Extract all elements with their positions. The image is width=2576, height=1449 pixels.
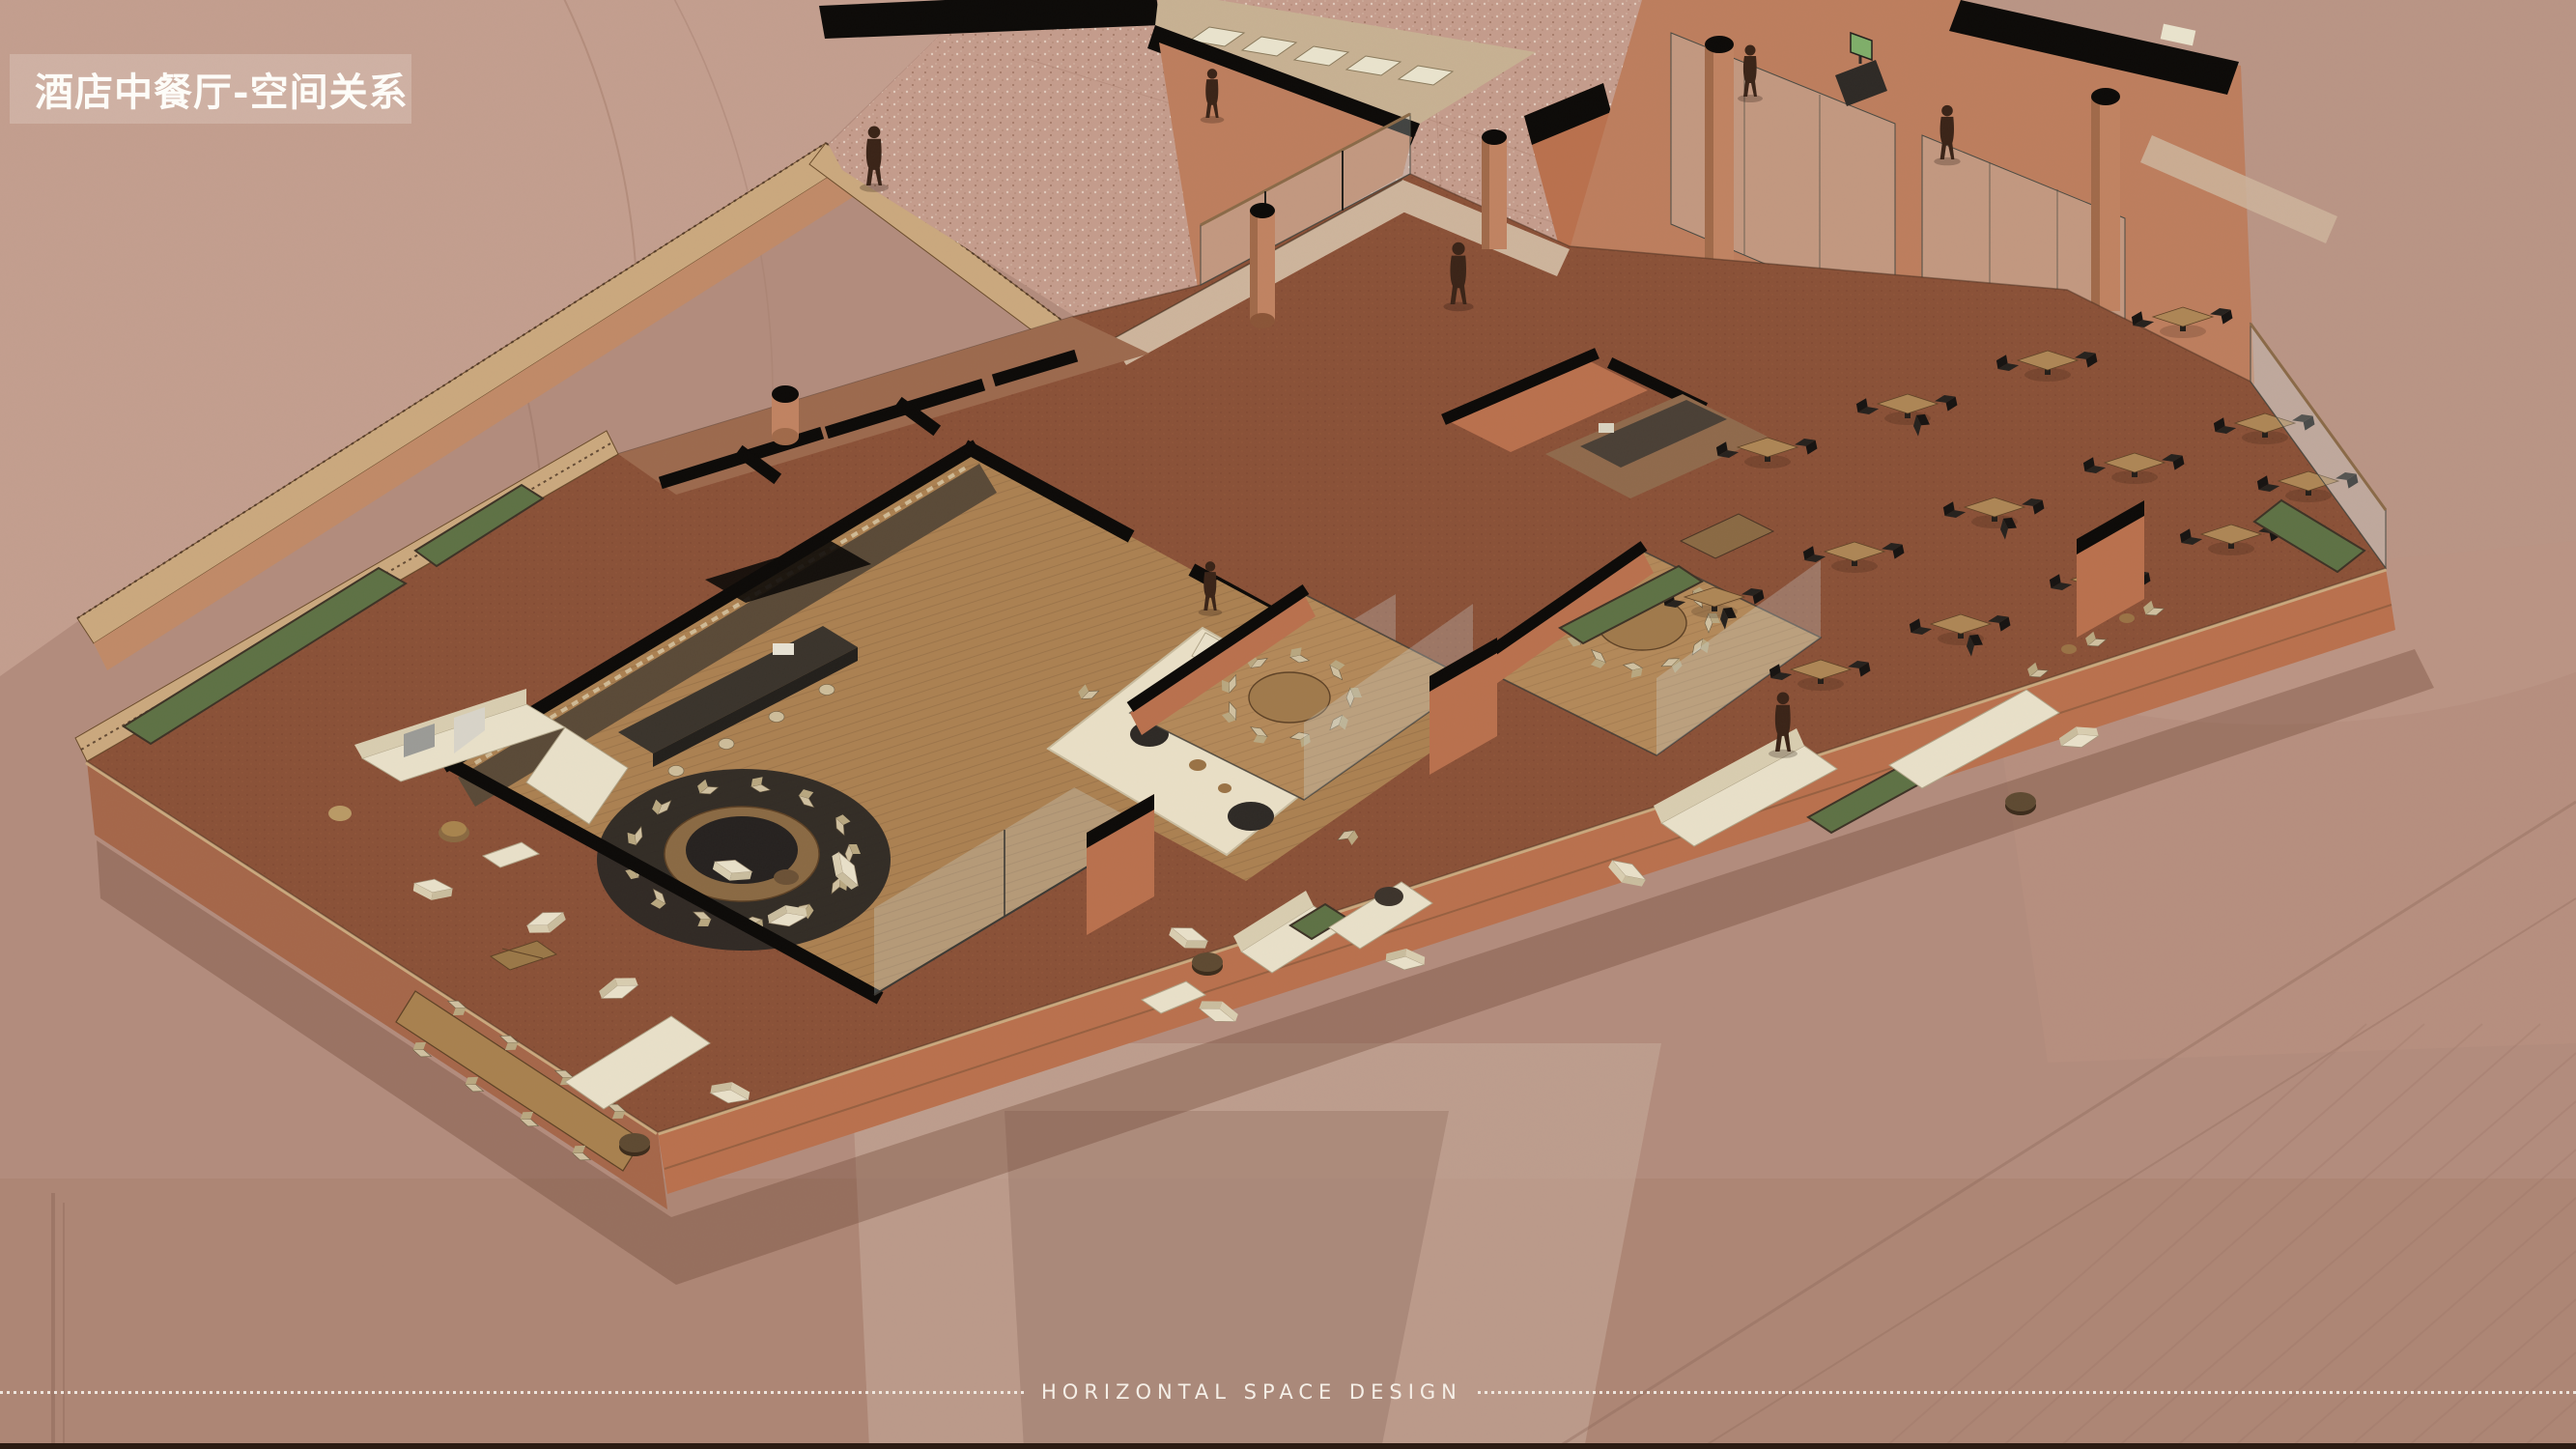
title-band: 酒店中餐厅-空间关系 xyxy=(10,54,411,124)
axonometric-rendering xyxy=(0,0,2576,1449)
footer: HORIZONTAL SPACE DESIGN xyxy=(0,1379,2576,1405)
footer-rule-left xyxy=(0,1391,1026,1394)
footer-rule-right xyxy=(1478,1391,2576,1394)
presentation-slide: 酒店中餐厅-空间关系 HORIZONTAL SPACE DESIGN xyxy=(0,0,2576,1449)
bottom-edge-bar xyxy=(0,1443,2576,1449)
slide-title: 酒店中餐厅-空间关系 xyxy=(35,61,409,117)
footer-caption: HORIZONTAL SPACE DESIGN xyxy=(1041,1380,1462,1404)
